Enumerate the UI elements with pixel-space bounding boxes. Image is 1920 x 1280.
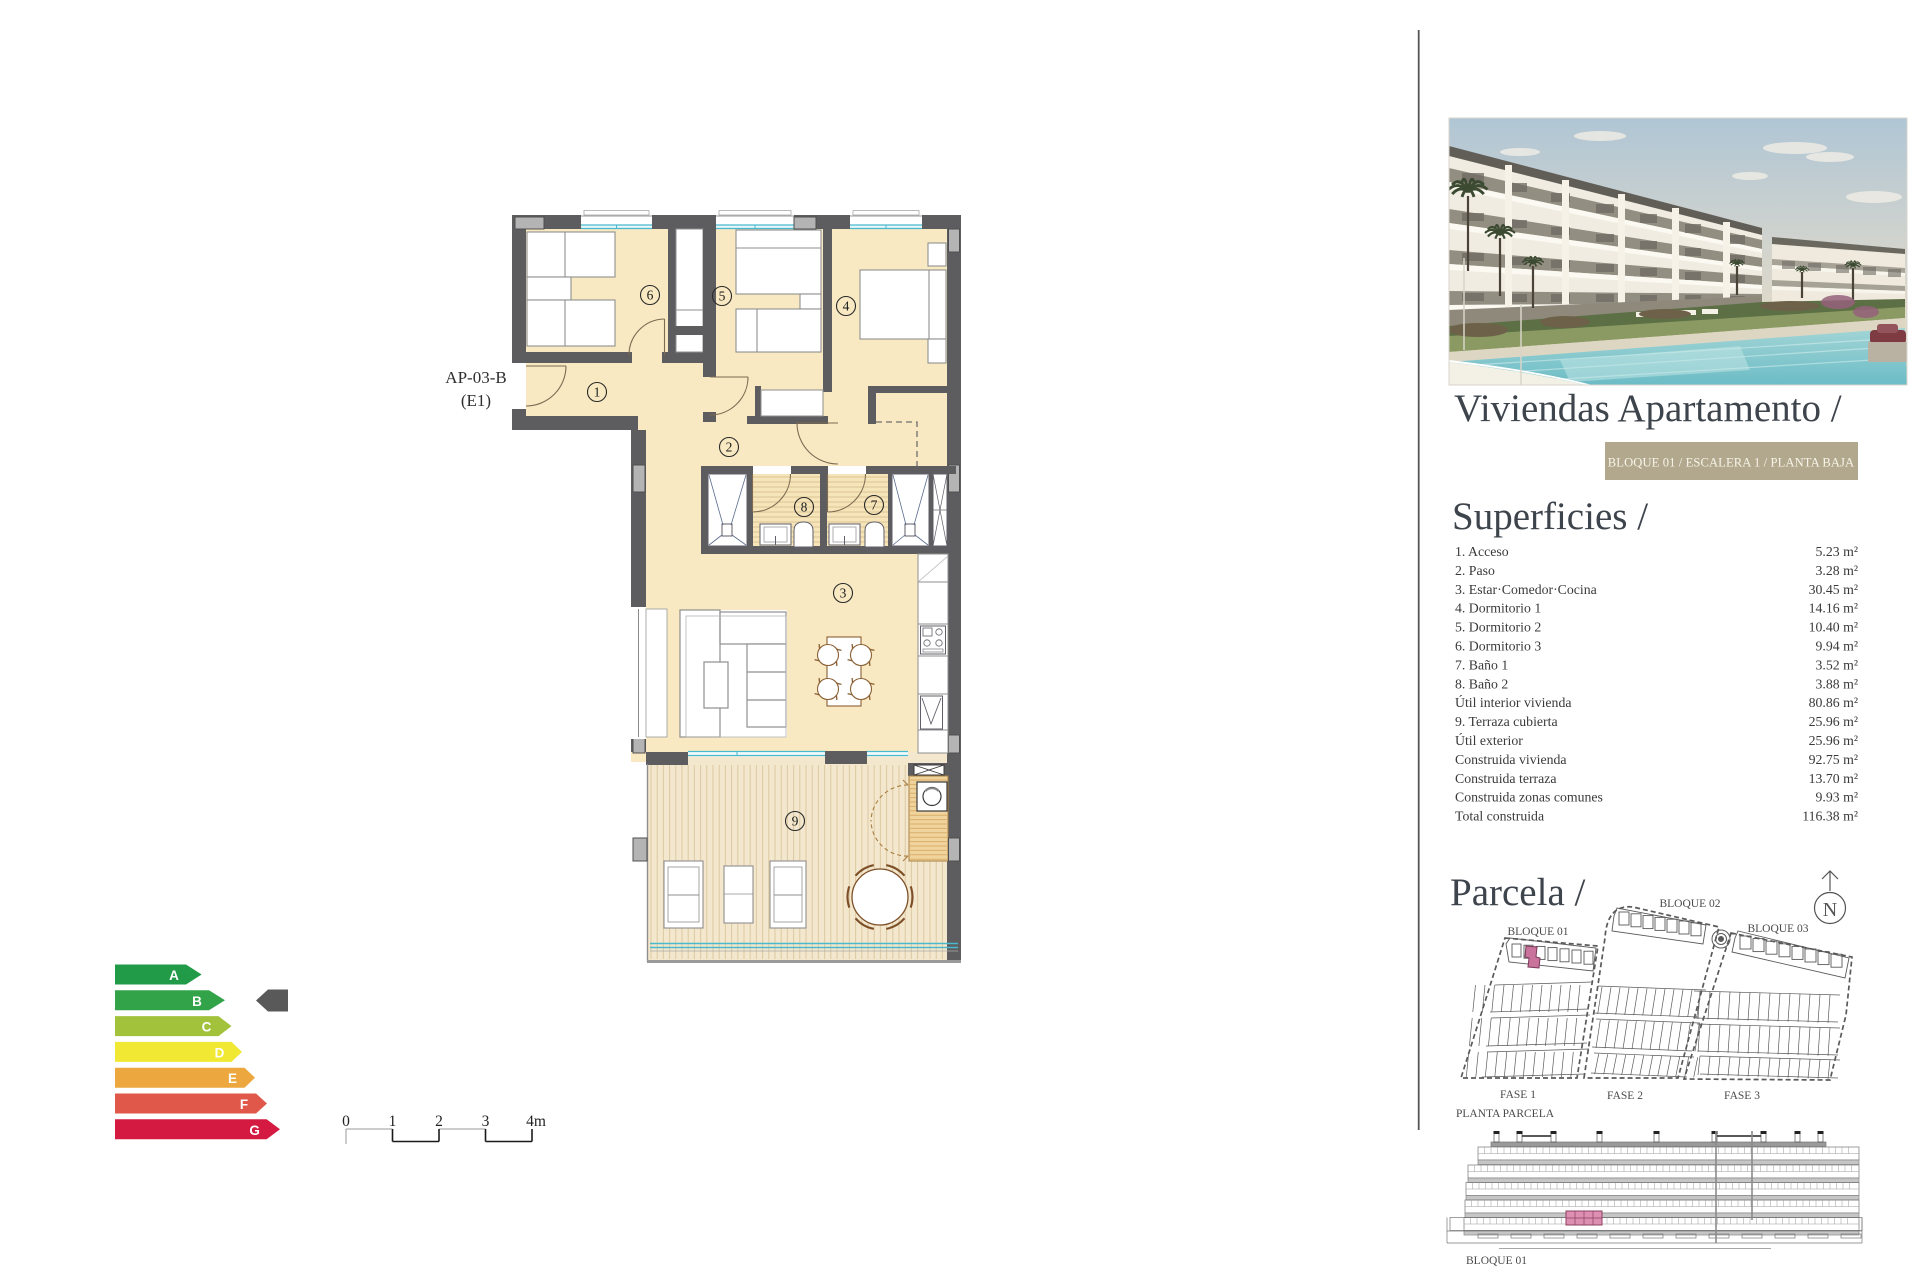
svg-text:Construida zonas comunes: Construida zonas comunes <box>1455 790 1603 805</box>
svg-text:BLOQUE 03: BLOQUE 03 <box>1747 923 1808 935</box>
svg-text:8. Baño 2: 8. Baño 2 <box>1455 676 1508 691</box>
svg-text:14.16 m²: 14.16 m² <box>1809 601 1858 616</box>
svg-text:BLOQUE 01: BLOQUE 01 <box>1466 1255 1527 1267</box>
svg-text:9.93 m²: 9.93 m² <box>1816 790 1858 805</box>
svg-text:Superficies /: Superficies / <box>1452 495 1648 538</box>
svg-text:92.75 m²: 92.75 m² <box>1809 752 1858 767</box>
svg-text:F: F <box>240 1097 248 1112</box>
svg-text:4. Dormitorio 1: 4. Dormitorio 1 <box>1455 601 1541 616</box>
svg-text:B: B <box>192 994 202 1009</box>
svg-text:80.86 m²: 80.86 m² <box>1809 695 1858 710</box>
svg-text:6. Dormitorio 3: 6. Dormitorio 3 <box>1455 639 1541 654</box>
svg-text:0: 0 <box>342 1113 350 1130</box>
svg-text:C: C <box>202 1020 212 1035</box>
svg-text:N: N <box>1823 899 1837 921</box>
svg-text:3: 3 <box>840 586 847 601</box>
svg-text:5.23 m²: 5.23 m² <box>1816 544 1858 559</box>
svg-text:Total construida: Total construida <box>1455 809 1544 824</box>
svg-text:PLANTA PARCELA: PLANTA PARCELA <box>1456 1108 1555 1120</box>
svg-text:25.96 m²: 25.96 m² <box>1809 714 1858 729</box>
svg-text:E: E <box>228 1071 237 1086</box>
svg-text:7. Baño 1: 7. Baño 1 <box>1455 657 1508 672</box>
svg-text:5. Dormitorio 2: 5. Dormitorio 2 <box>1455 620 1541 635</box>
svg-text:A: A <box>169 968 179 983</box>
svg-text:3.88 m²: 3.88 m² <box>1816 676 1858 691</box>
svg-text:D: D <box>215 1045 225 1060</box>
svg-text:9: 9 <box>792 814 799 829</box>
svg-text:Viviendas Apartamento /: Viviendas Apartamento / <box>1454 387 1842 430</box>
svg-text:1: 1 <box>389 1113 397 1130</box>
svg-text:Construida terraza: Construida terraza <box>1455 771 1557 786</box>
svg-text:4m: 4m <box>526 1113 546 1130</box>
svg-text:Útil interior vivienda: Útil interior vivienda <box>1455 694 1571 710</box>
svg-text:30.45 m²: 30.45 m² <box>1809 582 1858 597</box>
svg-text:1. Acceso: 1. Acceso <box>1455 544 1509 559</box>
svg-text:8: 8 <box>801 500 808 515</box>
svg-text:AP-03-B: AP-03-B <box>445 368 506 387</box>
svg-text:3. Estar·Comedor·Cocina: 3. Estar·Comedor·Cocina <box>1455 582 1597 597</box>
svg-text:Parcela /: Parcela / <box>1450 871 1586 914</box>
svg-text:G: G <box>249 1123 260 1138</box>
svg-text:13.70 m²: 13.70 m² <box>1809 771 1858 786</box>
svg-text:9. Terraza cubierta: 9. Terraza cubierta <box>1455 714 1558 729</box>
svg-text:3.28 m²: 3.28 m² <box>1816 563 1858 578</box>
svg-text:4: 4 <box>843 299 850 314</box>
svg-text:2: 2 <box>726 440 733 455</box>
svg-text:FASE 2: FASE 2 <box>1607 1090 1643 1102</box>
svg-text:5: 5 <box>719 289 726 304</box>
svg-text:FASE 1: FASE 1 <box>1500 1089 1536 1101</box>
svg-text:BLOQUE 02: BLOQUE 02 <box>1659 898 1720 910</box>
svg-text:7: 7 <box>871 498 878 513</box>
svg-text:Útil exterior: Útil exterior <box>1455 732 1523 748</box>
svg-text:BLOQUE 01 / ESCALERA 1 / PLANT: BLOQUE 01 / ESCALERA 1 / PLANTA BAJA <box>1608 456 1854 470</box>
svg-text:9.94 m²: 9.94 m² <box>1816 639 1858 654</box>
svg-text:Construida vivienda: Construida vivienda <box>1455 752 1567 767</box>
svg-text:6: 6 <box>647 288 654 303</box>
svg-text:3.52 m²: 3.52 m² <box>1816 657 1858 672</box>
svg-text:3: 3 <box>482 1113 490 1130</box>
svg-text:2: 2 <box>435 1113 443 1130</box>
svg-text:10.40 m²: 10.40 m² <box>1809 620 1858 635</box>
svg-text:116.38 m²: 116.38 m² <box>1802 809 1858 824</box>
svg-text:(E1): (E1) <box>461 391 491 410</box>
svg-text:1: 1 <box>594 385 601 400</box>
svg-text:FASE 3: FASE 3 <box>1724 1090 1760 1102</box>
svg-text:BLOQUE 01: BLOQUE 01 <box>1507 926 1568 938</box>
svg-text:2. Paso: 2. Paso <box>1455 563 1495 578</box>
svg-text:25.96 m²: 25.96 m² <box>1809 733 1858 748</box>
